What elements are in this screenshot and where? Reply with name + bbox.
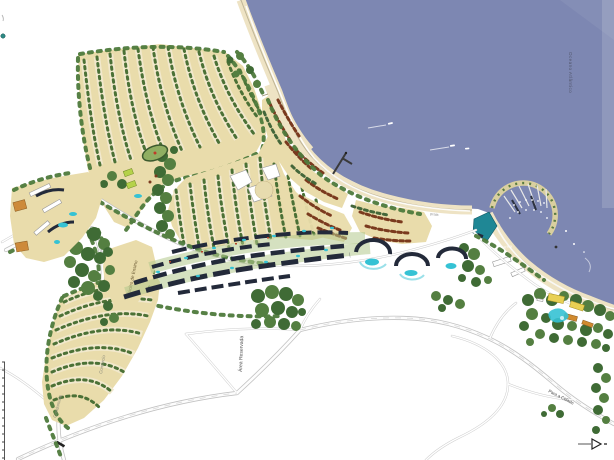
forest-south-central (251, 285, 306, 331)
legend-dot (1, 15, 5, 38)
reserved-area: Área Reservada (237, 335, 245, 372)
reserved-label: Área Reservada (237, 335, 245, 372)
masterplan-drawing: Oceano Atlântico praia praia (0, 0, 614, 460)
marina-entrance-buoy (555, 246, 558, 249)
scale-bar (2, 362, 5, 460)
resort-crescents (356, 240, 466, 279)
ocean-label: Oceano Atlântico (568, 52, 573, 93)
masterplan-canvas: Oceano Atlântico praia praia (0, 0, 614, 460)
direction-arrow (578, 439, 607, 449)
beach-label-2: praia (430, 212, 440, 217)
